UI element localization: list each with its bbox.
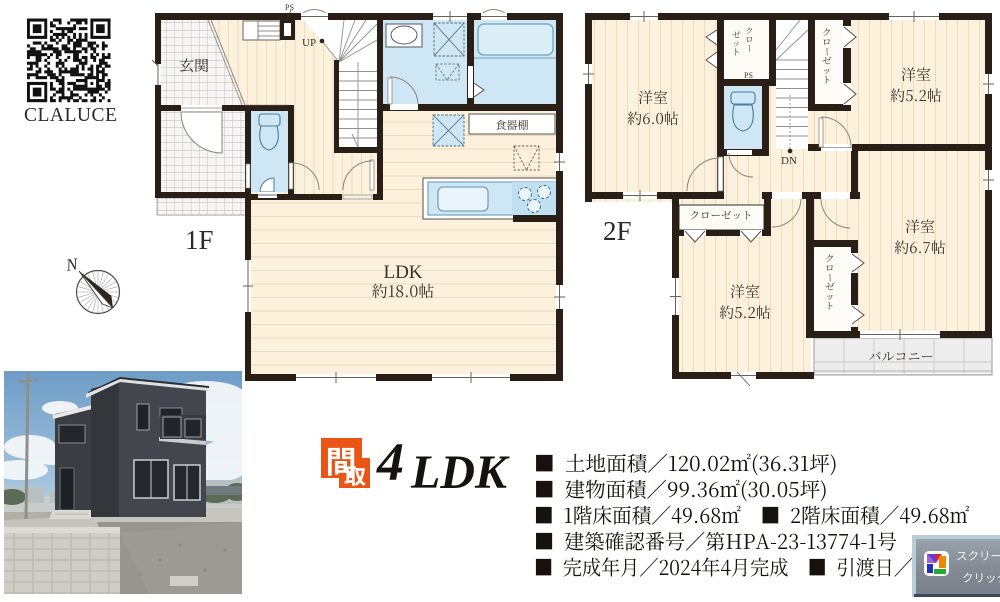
svg-text:PS: PS: [285, 3, 294, 12]
svg-text:LDK: LDK: [410, 446, 510, 499]
svg-text:UP: UP: [302, 37, 316, 49]
svg-text:1F: 1F: [185, 225, 214, 255]
svg-text:4: 4: [376, 432, 404, 492]
svg-text:LDK: LDK: [383, 262, 422, 283]
svg-text:N: N: [64, 254, 81, 275]
svg-text:PS: PS: [744, 71, 753, 80]
svg-text:DN: DN: [781, 155, 797, 167]
svg-text:2F: 2F: [603, 216, 632, 246]
svg-text:CLALUCE: CLALUCE: [24, 105, 117, 126]
